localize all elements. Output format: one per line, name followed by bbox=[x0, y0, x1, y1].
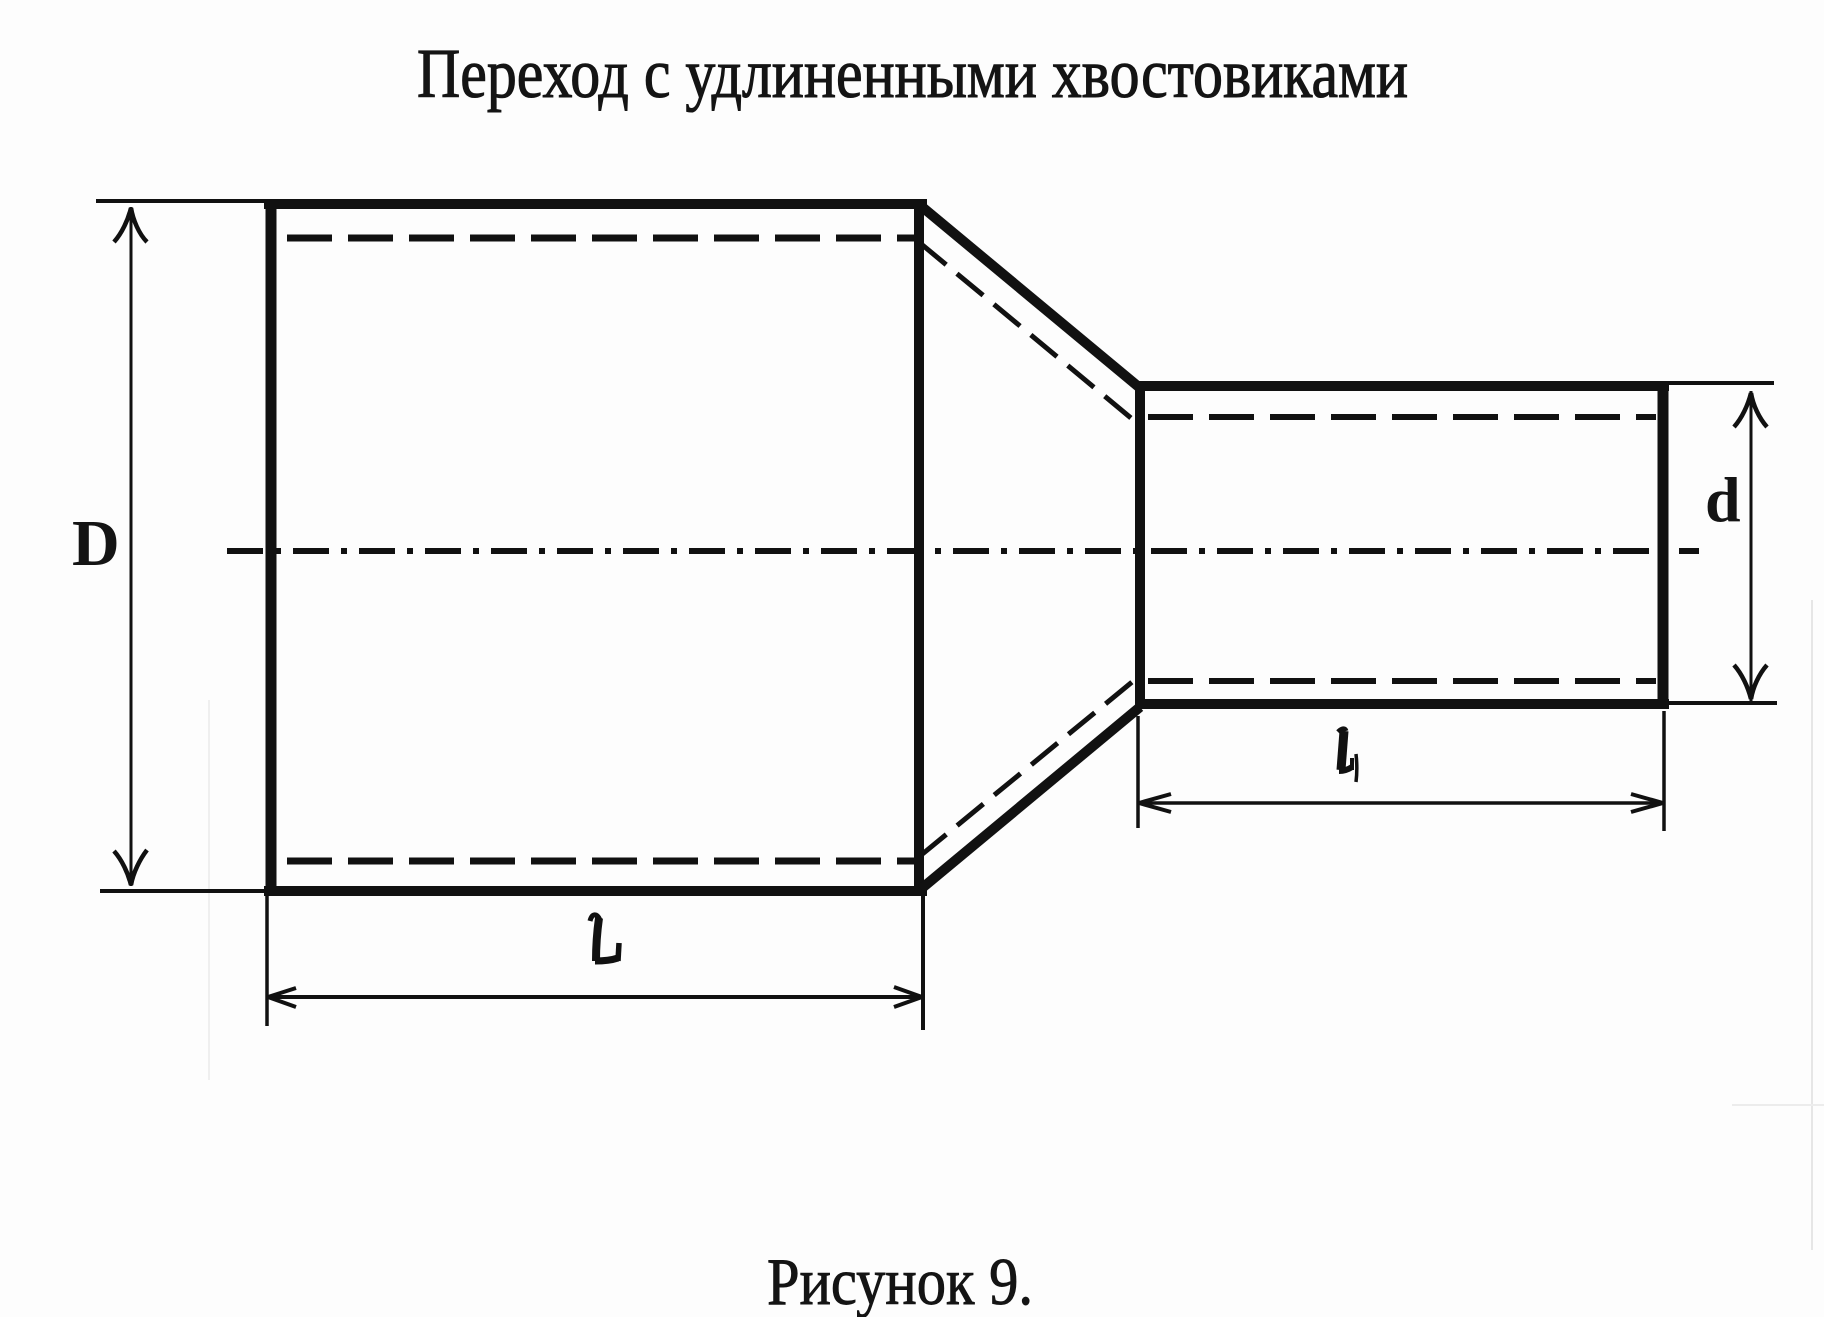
svg-text:d: d bbox=[1705, 464, 1741, 535]
svg-text:Рисунок 9.: Рисунок 9. bbox=[767, 1245, 1033, 1317]
svg-text:D: D bbox=[72, 507, 120, 580]
svg-text:Переход с удлиненными хвостови: Переход с удлиненными хвостовиками bbox=[417, 36, 1408, 113]
